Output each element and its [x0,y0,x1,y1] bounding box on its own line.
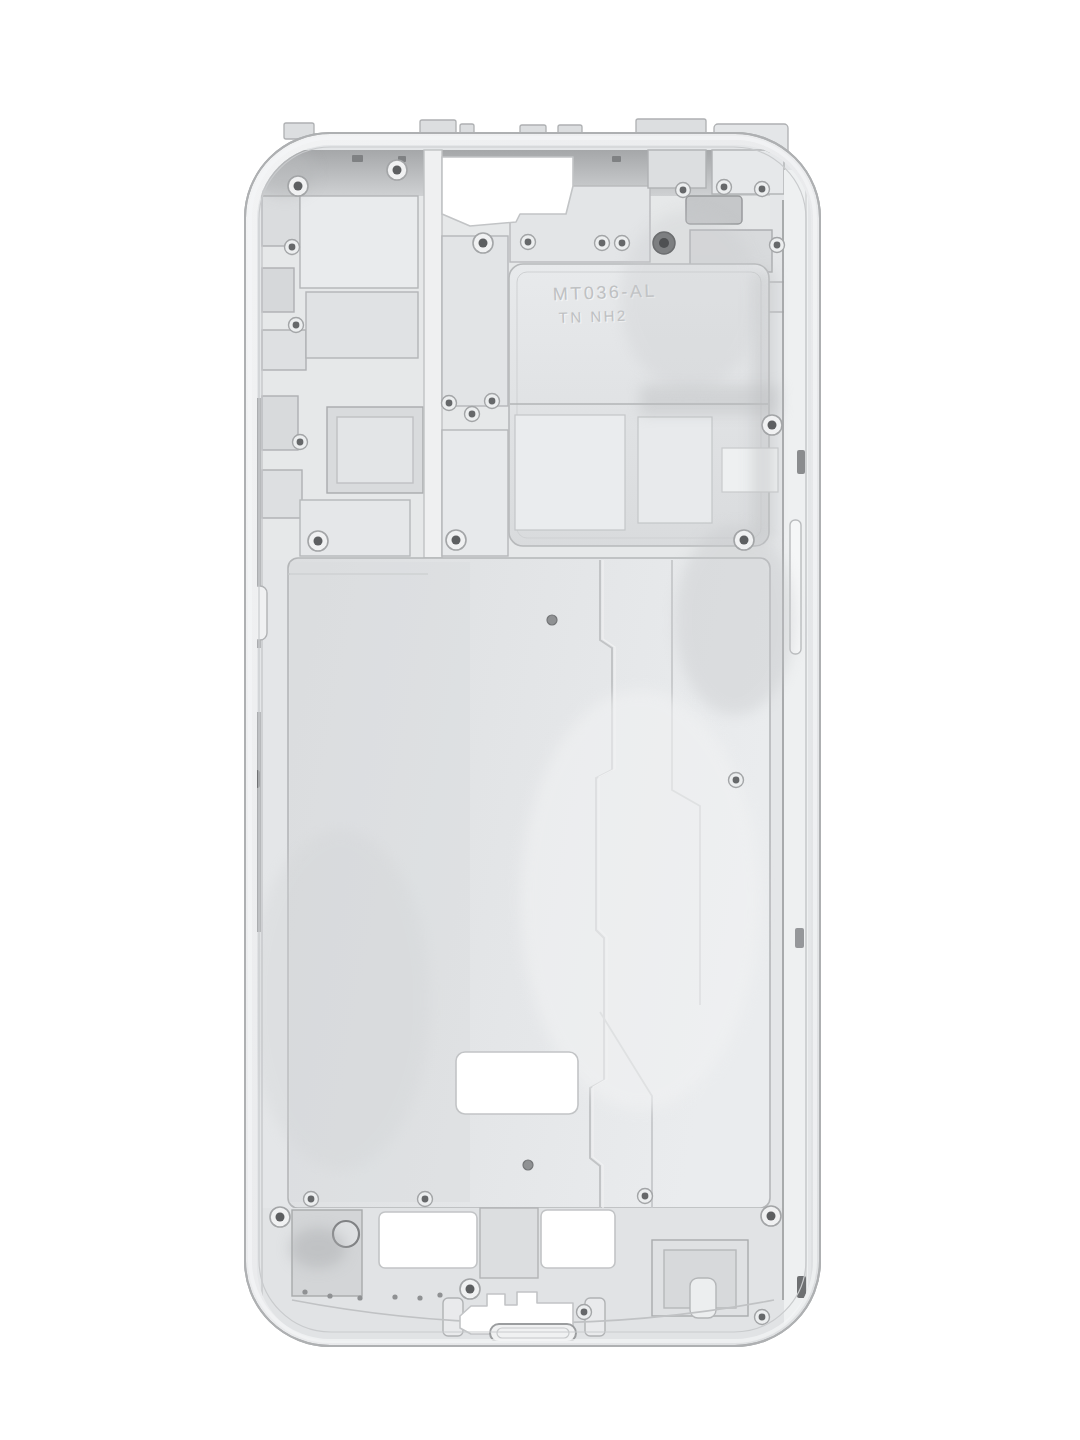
speaker-cutout-right [541,1210,615,1268]
photo-canvas: MT036-AL MT036-AL TN NH2 TN NH2 [0,0,1080,1440]
screw-hole [717,180,732,195]
screw-hole-large [653,232,675,254]
screw-hole [460,1279,480,1299]
screw-hole [289,318,304,333]
screw-hole [755,1310,770,1325]
pin-hole [523,1160,533,1170]
screw-hole [770,238,785,253]
screw-hole [473,233,493,253]
screw-hole [418,1192,433,1207]
screw-hole [615,236,630,251]
screw-hole [676,183,691,198]
pin-hole [547,615,557,625]
screw-hole [387,160,407,180]
screw-hole [755,182,770,197]
screw-hole [308,531,328,551]
screw-hole [270,1207,290,1227]
screw-hole [734,530,754,550]
screw-hole [521,235,536,250]
frame-interior: MT036-AL MT036-AL TN NH2 TN NH2 [248,145,811,1342]
svg-text:TN NH2: TN NH2 [558,307,628,326]
screw-hole [638,1189,653,1204]
midframe-photo: MT036-AL MT036-AL TN NH2 TN NH2 [0,0,1080,1440]
screw-hole [577,1305,592,1320]
screw-hole [304,1192,319,1207]
mid-plate-cutout [456,1052,578,1114]
screw-hole [729,773,744,788]
screw-hole [485,394,500,409]
screw-hole [595,236,610,251]
screw-hole [288,176,308,196]
screw-hole [465,407,480,422]
side-rail-right [783,170,808,1330]
screw-hole [285,240,300,255]
screw-hole [761,1206,781,1226]
screw-hole [762,415,782,435]
screw-hole [293,435,308,450]
speaker-cutout-left [379,1212,477,1268]
screw-hole [446,530,466,550]
screw-hole [442,396,457,411]
